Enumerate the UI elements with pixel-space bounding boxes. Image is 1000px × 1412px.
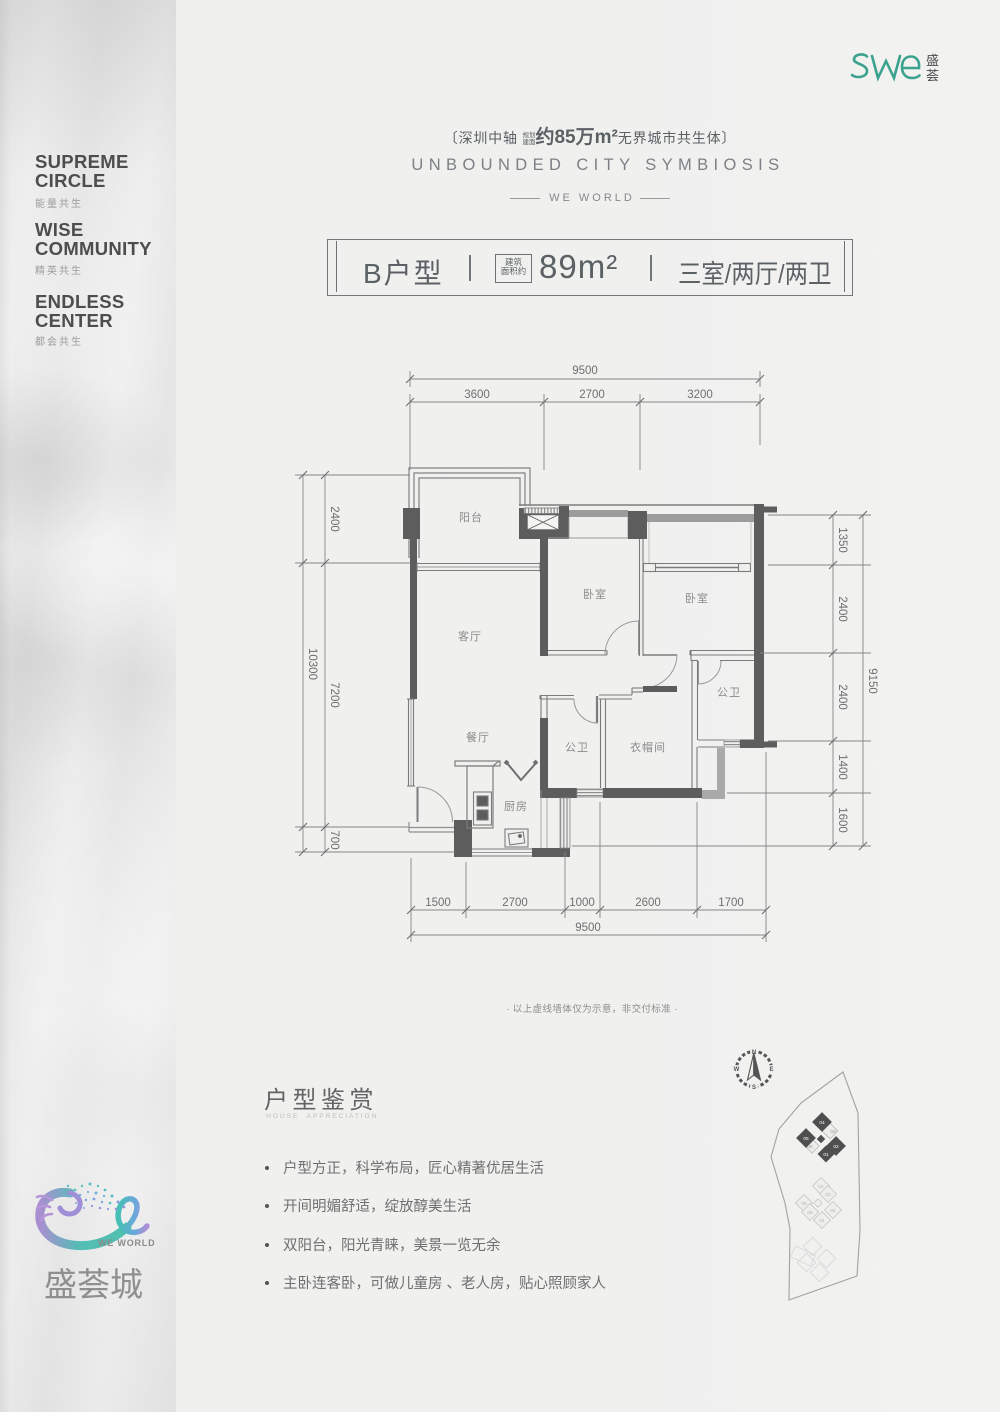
svg-text:2400: 2400 xyxy=(836,596,848,622)
svg-text:700: 700 xyxy=(328,830,340,849)
svg-text:2600: 2600 xyxy=(635,897,661,909)
svg-text:衣帽间: 衣帽间 xyxy=(630,740,666,754)
svg-text:公卫: 公卫 xyxy=(717,687,741,699)
svg-text:9500: 9500 xyxy=(572,365,598,377)
svg-text:阳台: 阳台 xyxy=(459,510,483,524)
svg-text:02: 02 xyxy=(830,1208,836,1214)
svg-text:2700: 2700 xyxy=(502,897,528,909)
svg-text:1500: 1500 xyxy=(425,897,451,909)
svg-text:3600: 3600 xyxy=(464,389,490,401)
svg-text:公卫: 公卫 xyxy=(565,742,589,754)
svg-text:1600: 1600 xyxy=(836,807,848,833)
svg-text:2400: 2400 xyxy=(836,684,848,710)
svg-text:7200: 7200 xyxy=(328,682,340,708)
svg-text:1000: 1000 xyxy=(569,897,595,909)
svg-text:03: 03 xyxy=(825,1192,831,1198)
svg-text:9150: 9150 xyxy=(866,668,878,694)
svg-text:S: S xyxy=(752,1085,756,1091)
svg-text:2400: 2400 xyxy=(328,506,340,532)
svg-text:餐厅: 餐厅 xyxy=(466,730,490,744)
svg-text:05: 05 xyxy=(803,1136,809,1142)
svg-text:04: 04 xyxy=(818,1184,824,1190)
svg-text:05: 05 xyxy=(801,1201,807,1207)
svg-text:02: 02 xyxy=(833,1144,839,1150)
svg-text:04: 04 xyxy=(819,1120,825,1126)
svg-text:卧室: 卧室 xyxy=(583,587,607,601)
svg-text:01: 01 xyxy=(819,1218,825,1224)
svg-text:01: 01 xyxy=(823,1152,829,1158)
svg-text:W: W xyxy=(734,1067,740,1073)
svg-text:3200: 3200 xyxy=(687,389,713,401)
svg-text:客厅: 客厅 xyxy=(458,629,482,643)
svg-text:06: 06 xyxy=(807,1210,813,1216)
svg-text:1700: 1700 xyxy=(718,897,744,909)
svg-text:厨房: 厨房 xyxy=(504,800,528,813)
svg-text:E: E xyxy=(769,1067,773,1073)
svg-text:9500: 9500 xyxy=(575,922,601,934)
svg-text:1350: 1350 xyxy=(836,527,848,553)
svg-text:1400: 1400 xyxy=(836,754,848,780)
svg-text:卧室: 卧室 xyxy=(685,591,709,605)
svg-text:10300: 10300 xyxy=(306,648,318,680)
svg-text:06: 06 xyxy=(807,1144,813,1150)
svg-text:03: 03 xyxy=(830,1129,836,1135)
svg-text:2700: 2700 xyxy=(579,389,605,401)
